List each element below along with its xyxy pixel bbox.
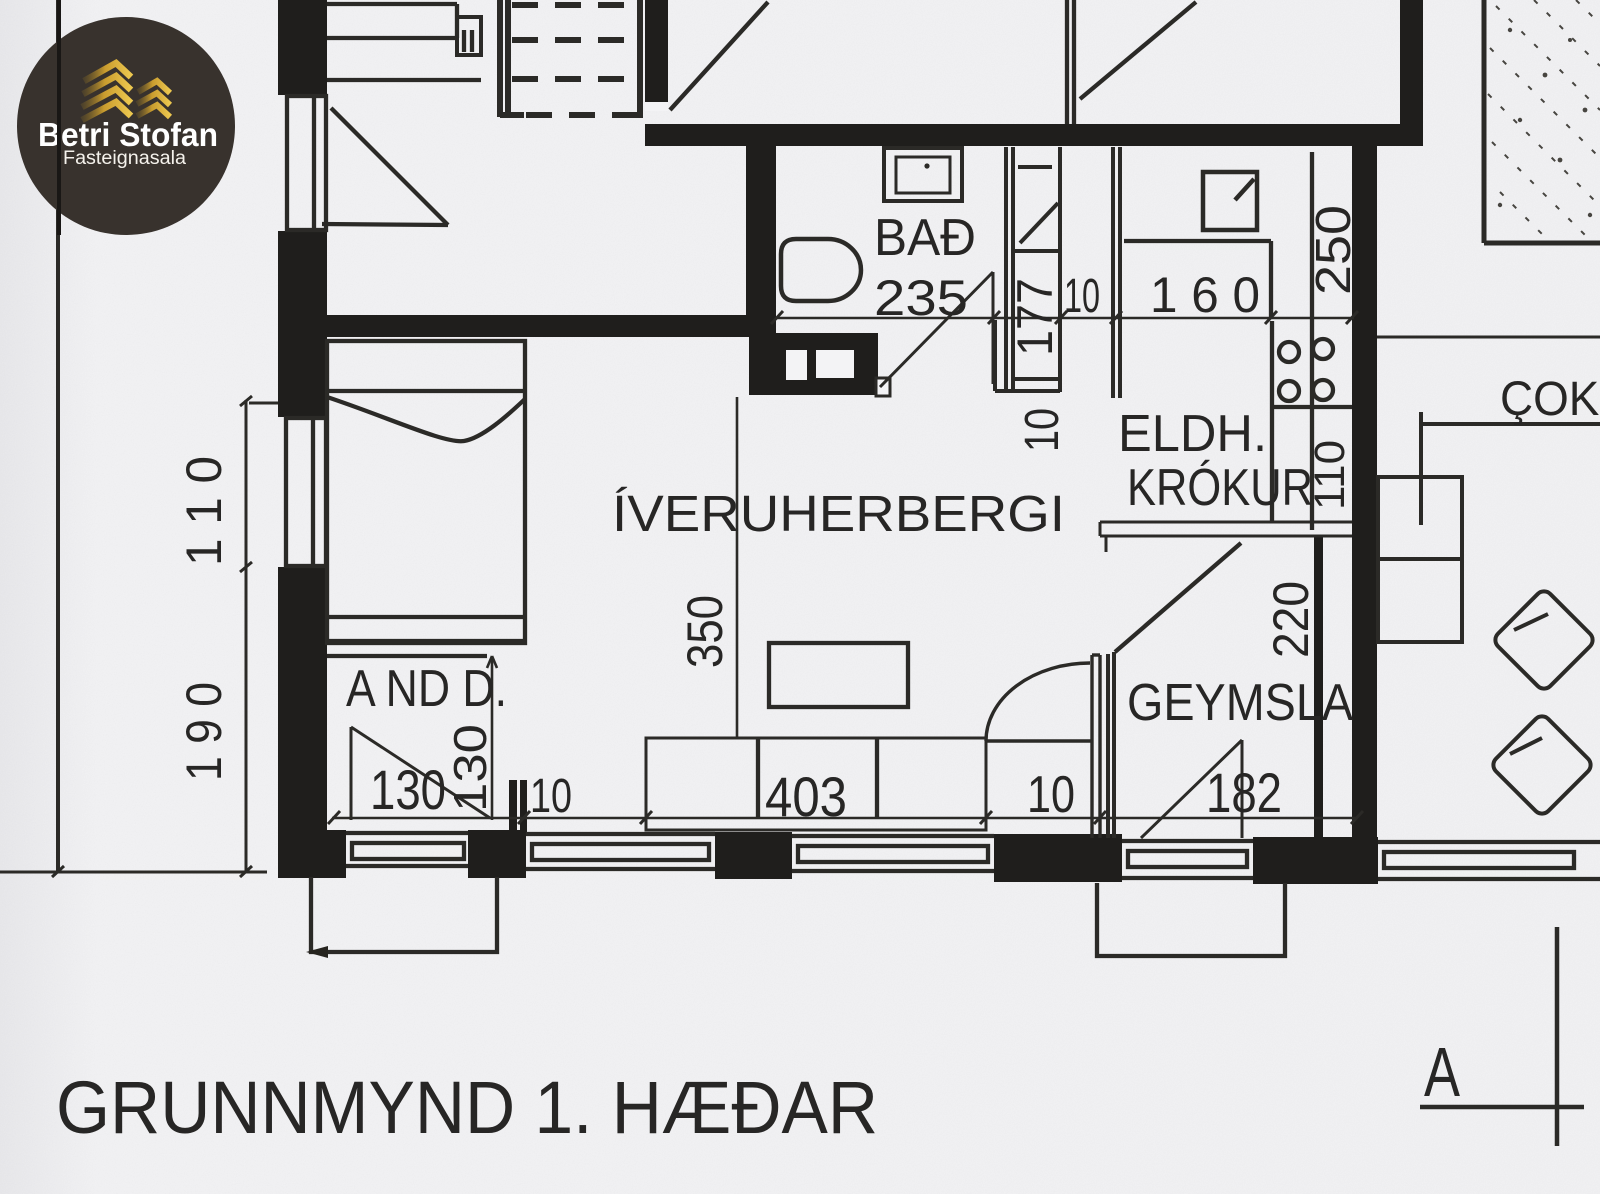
svg-text:GRUNNMYND 1. HÆÐAR: GRUNNMYND 1. HÆÐAR (56, 1066, 878, 1149)
svg-text:10: 10 (1016, 408, 1069, 452)
svg-text:ÍVERUHERBERGI: ÍVERUHERBERGI (612, 485, 1065, 542)
svg-text:Fasteignasala: Fasteignasala (63, 148, 186, 169)
svg-text:130: 130 (370, 758, 446, 821)
svg-text:10: 10 (1064, 270, 1100, 323)
svg-text:10: 10 (1027, 766, 1075, 824)
svg-text:A ND D.: A ND D. (346, 660, 507, 718)
svg-text:1 9 0: 1 9 0 (176, 682, 232, 781)
svg-text:235: 235 (874, 270, 968, 326)
svg-text:10: 10 (530, 770, 572, 823)
svg-text:182: 182 (1206, 761, 1282, 824)
svg-text:1 1 0: 1 1 0 (176, 456, 232, 566)
svg-text:1 6 0: 1 6 0 (1150, 267, 1260, 323)
svg-text:220: 220 (1263, 581, 1319, 658)
svg-text:GEYMSLA: GEYMSLA (1127, 674, 1353, 732)
svg-text:250: 250 (1307, 205, 1361, 295)
svg-text:ÇOKE: ÇOKE (1500, 373, 1600, 426)
svg-text:130: 130 (444, 724, 496, 812)
svg-text:403: 403 (765, 765, 847, 828)
svg-text:110: 110 (1306, 440, 1354, 510)
svg-text:177: 177 (1007, 278, 1063, 356)
svg-text:ELDH.: ELDH. (1118, 405, 1267, 463)
svg-text:A: A (1424, 1033, 1460, 1111)
svg-text:BAÐ: BAÐ (874, 209, 976, 267)
svg-text:KRÓKUR: KRÓKUR (1127, 459, 1313, 517)
svg-text:350: 350 (677, 595, 733, 668)
